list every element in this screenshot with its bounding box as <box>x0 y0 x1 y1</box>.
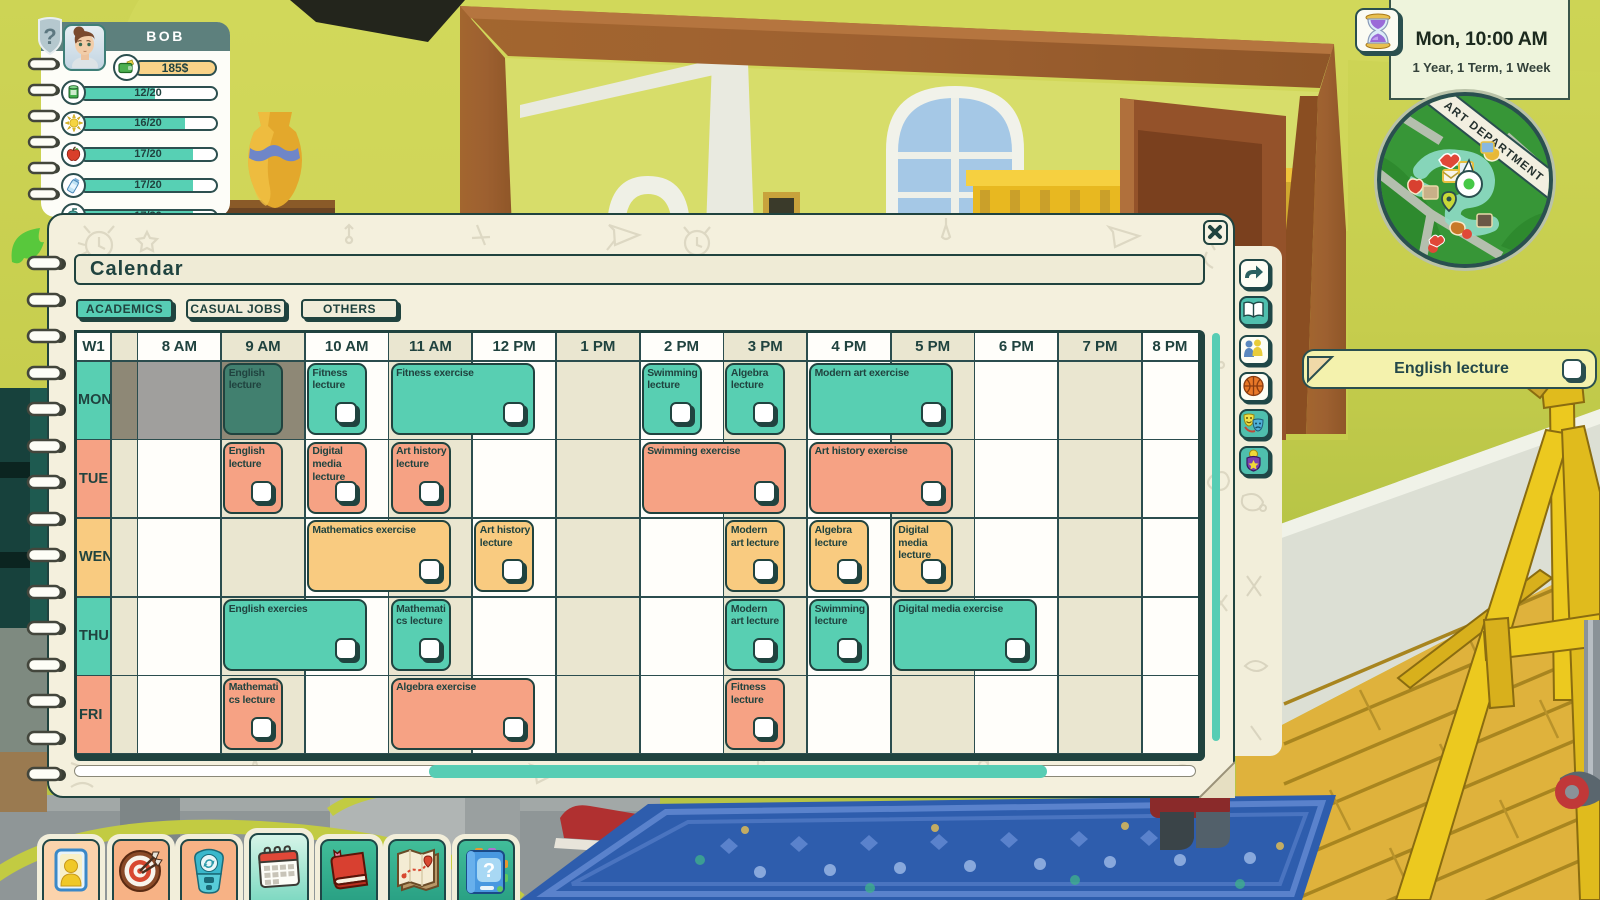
svg-text:?: ? <box>43 24 56 49</box>
svg-text:?: ? <box>483 860 495 882</box>
